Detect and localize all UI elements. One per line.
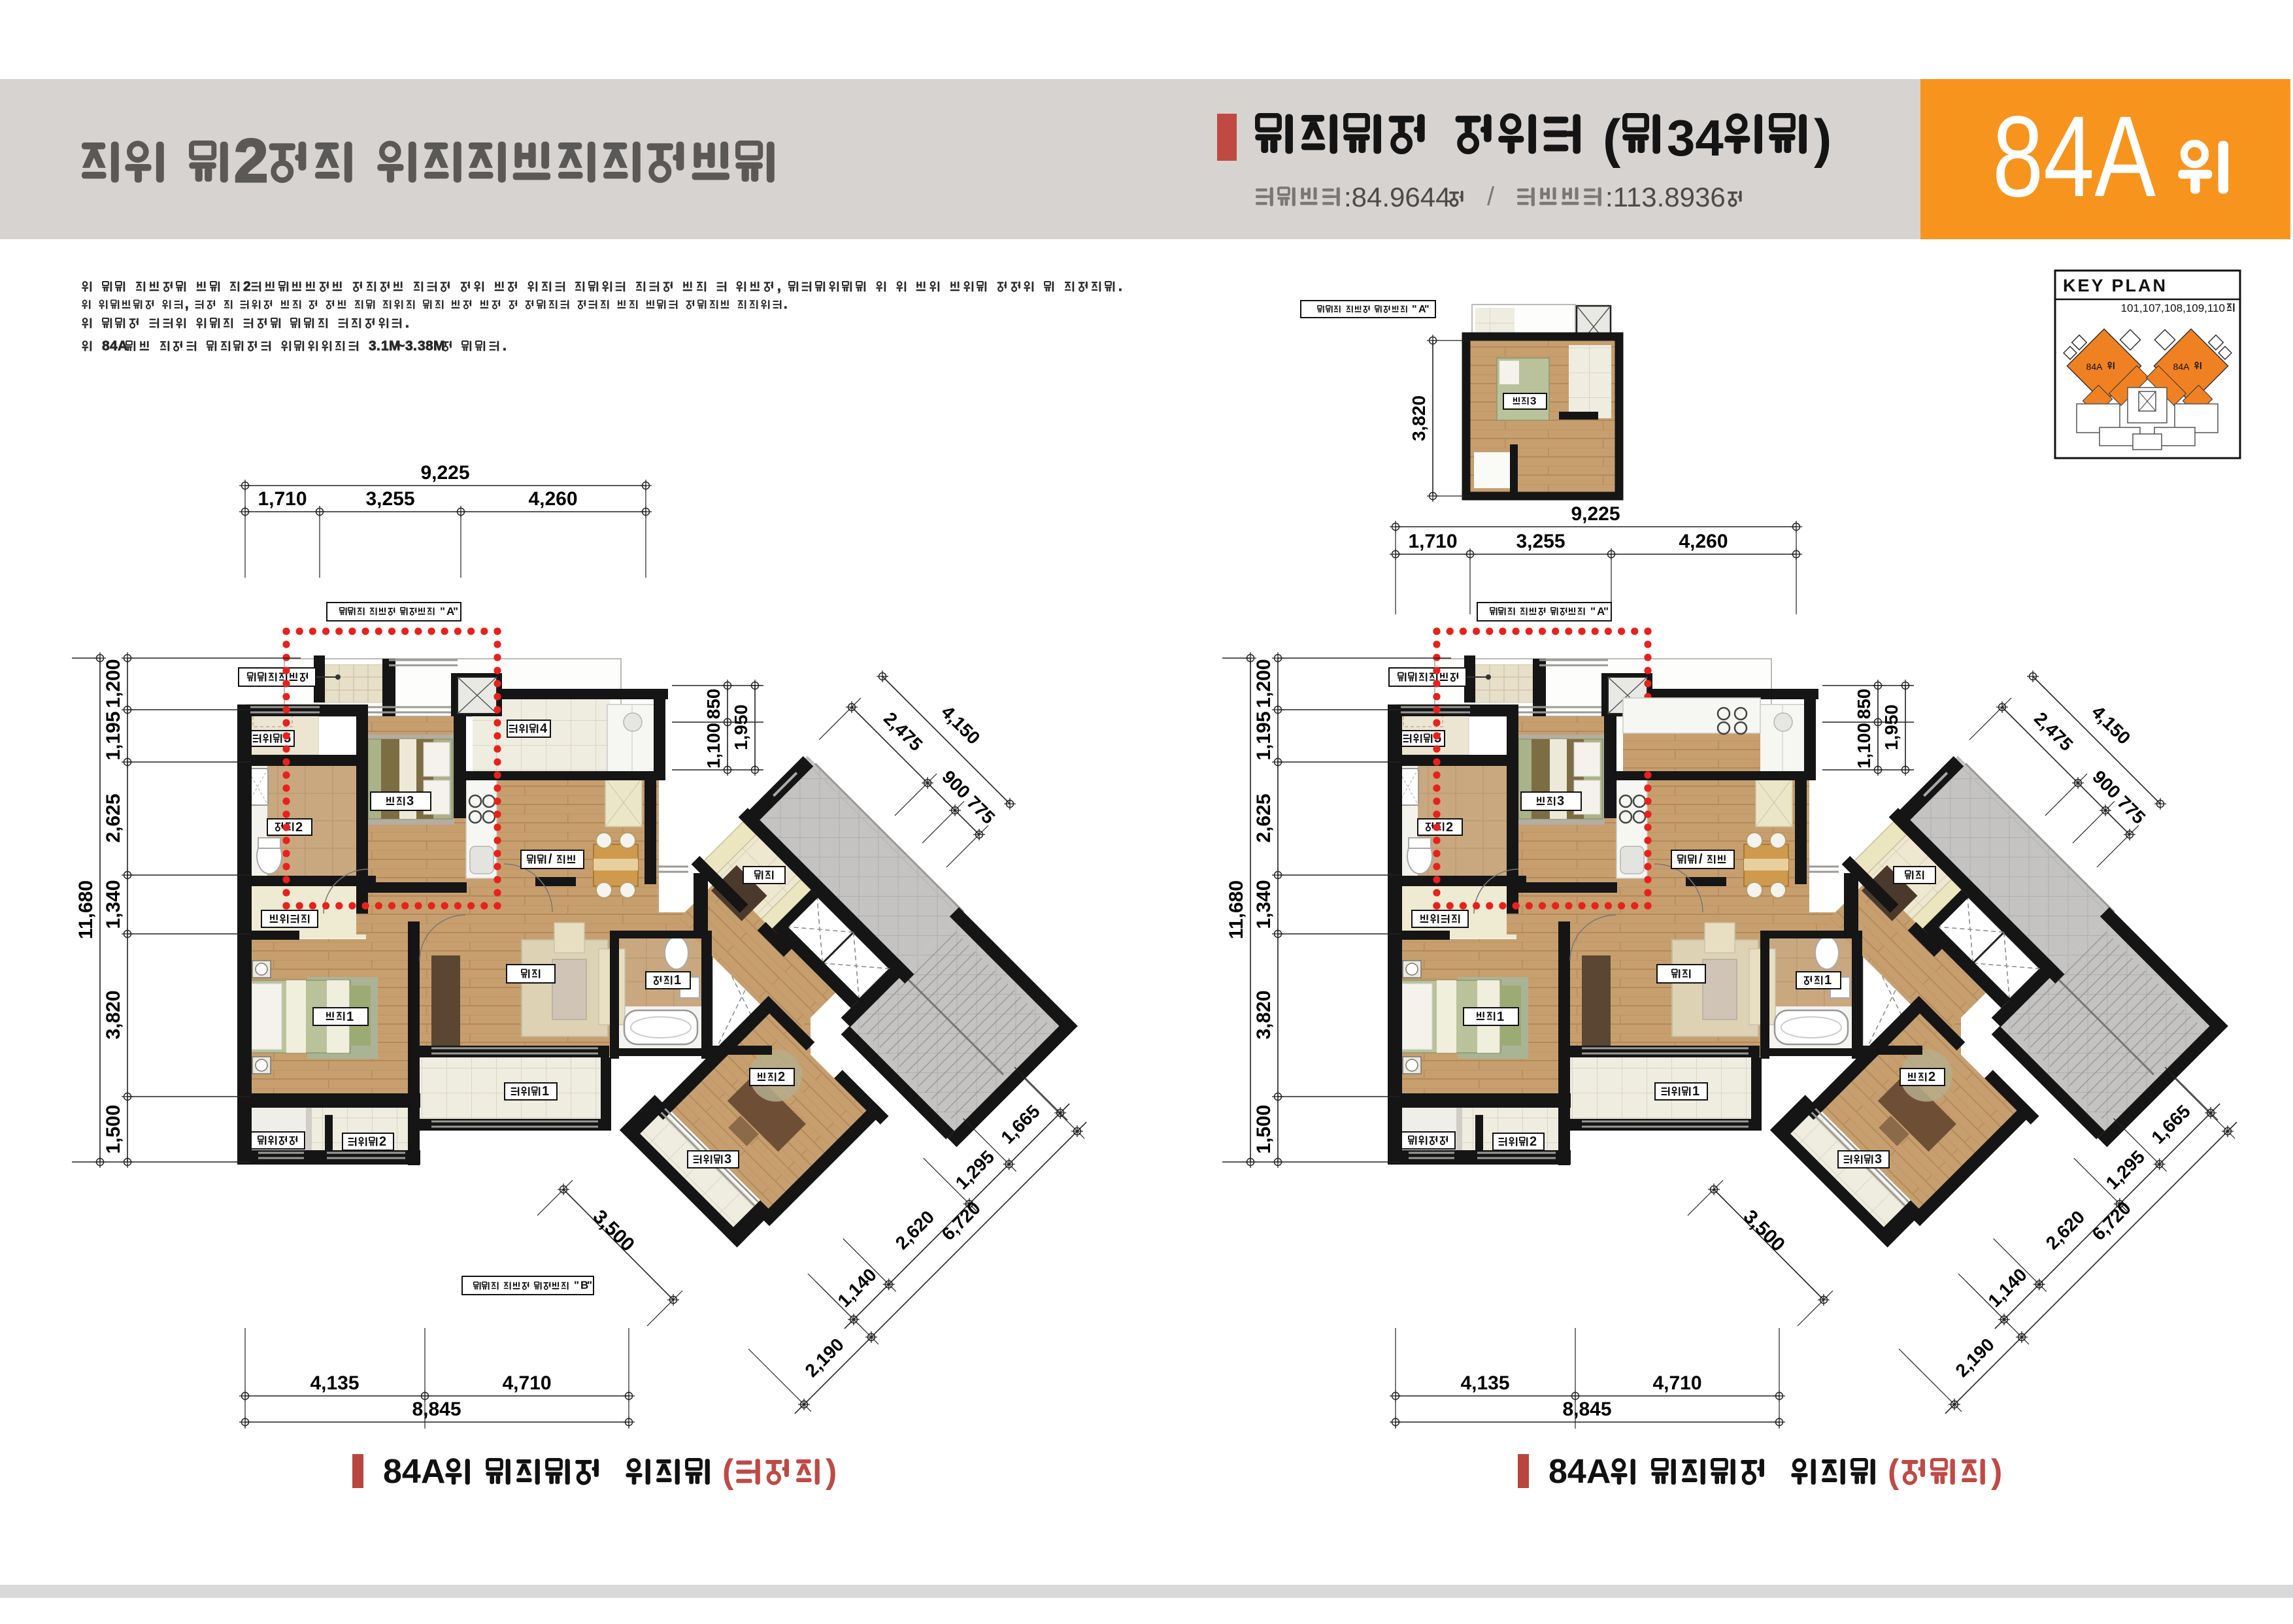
- svg-text:8,845: 8,845: [412, 1399, 461, 1420]
- svg-text:1,100: 1,100: [703, 723, 724, 769]
- svg-text:1,950: 1,950: [731, 704, 751, 750]
- svg-text:": ": [1424, 304, 1430, 315]
- svg-text:,: ,: [777, 279, 781, 294]
- svg-text:": ": [1412, 304, 1417, 315]
- svg-text:M: M: [433, 339, 445, 354]
- svg-text:84A: 84A: [1548, 1453, 1611, 1491]
- svg-text:1,195: 1,195: [103, 711, 124, 760]
- svg-text:2: 2: [243, 279, 251, 294]
- svg-text:3,255: 3,255: [1516, 531, 1565, 552]
- svg-text:1,500: 1,500: [103, 1104, 124, 1153]
- svg-text:/: /: [1487, 182, 1495, 211]
- svg-text:.: .: [1118, 279, 1122, 294]
- svg-text:4,260: 4,260: [1679, 531, 1728, 552]
- svg-text:): ): [1814, 109, 1832, 169]
- svg-text:9,225: 9,225: [1571, 503, 1620, 525]
- svg-text:3: 3: [724, 1152, 731, 1167]
- svg-text:(: (: [1603, 109, 1621, 169]
- svg-text:2,625: 2,625: [103, 793, 124, 842]
- svg-text:1: 1: [381, 339, 389, 354]
- svg-text:4,260: 4,260: [528, 488, 577, 510]
- svg-text:9,225: 9,225: [420, 462, 469, 484]
- svg-text:(: (: [1888, 1453, 1900, 1491]
- svg-text:2: 2: [234, 126, 268, 195]
- svg-text:3: 3: [407, 794, 414, 808]
- svg-text:.: .: [503, 339, 507, 354]
- svg-text:/: /: [548, 852, 552, 867]
- svg-text::113.8936: :113.8936: [1605, 182, 1726, 212]
- svg-text:3,820: 3,820: [103, 990, 124, 1039]
- svg-text:1,710: 1,710: [1408, 531, 1457, 552]
- svg-text:3,255: 3,255: [365, 488, 414, 510]
- svg-text:.: .: [413, 339, 417, 354]
- svg-text:3: 3: [405, 339, 413, 354]
- svg-text:.: .: [784, 297, 788, 312]
- svg-text:2: 2: [778, 1070, 785, 1084]
- svg-text:.: .: [405, 316, 409, 331]
- svg-text:3: 3: [418, 339, 426, 354]
- svg-text:1,710: 1,710: [258, 488, 307, 510]
- svg-text:4: 4: [110, 339, 118, 354]
- svg-text:84A: 84A: [1992, 93, 2156, 221]
- svg-text:850: 850: [703, 689, 724, 720]
- svg-text::84.9644: :84.9644: [1344, 182, 1451, 212]
- svg-text:3,820: 3,820: [1409, 395, 1429, 441]
- svg-text:): ): [1991, 1453, 2002, 1491]
- svg-text:KEY PLAN: KEY PLAN: [2063, 276, 2167, 295]
- svg-text:1: 1: [674, 973, 681, 987]
- svg-text:84A: 84A: [2086, 361, 2103, 372]
- svg-text:1: 1: [346, 1010, 354, 1024]
- svg-text:): ): [826, 1453, 837, 1491]
- svg-text:": ": [587, 1279, 592, 1291]
- svg-text:84A: 84A: [2173, 361, 2190, 372]
- svg-text:4: 4: [540, 721, 548, 736]
- svg-text:4,135: 4,135: [310, 1372, 359, 1394]
- svg-text:2: 2: [379, 1135, 386, 1149]
- svg-text:3: 3: [1530, 395, 1536, 407]
- svg-text:34: 34: [1667, 109, 1724, 167]
- svg-text:11,680: 11,680: [75, 880, 97, 939]
- svg-text:1: 1: [542, 1084, 549, 1099]
- svg-text:1,340: 1,340: [103, 880, 124, 929]
- svg-text:4,710: 4,710: [502, 1372, 551, 1394]
- svg-text:,: ,: [185, 297, 189, 312]
- svg-text:(: (: [722, 1453, 734, 1491]
- svg-text:1,200: 1,200: [103, 659, 124, 708]
- svg-text:": ": [440, 605, 445, 618]
- svg-text:": ": [574, 1279, 579, 1291]
- svg-text:2: 2: [295, 820, 303, 835]
- svg-text:": ": [453, 605, 458, 618]
- svg-text:8: 8: [426, 339, 433, 354]
- svg-text:101,107,108,109,110: 101,107,108,109,110: [2121, 302, 2225, 314]
- svg-text:.: .: [377, 339, 380, 354]
- svg-text:3: 3: [369, 339, 377, 354]
- svg-text:84A: 84A: [383, 1453, 445, 1491]
- svg-text:~: ~: [397, 339, 405, 354]
- svg-text:8: 8: [102, 339, 110, 354]
